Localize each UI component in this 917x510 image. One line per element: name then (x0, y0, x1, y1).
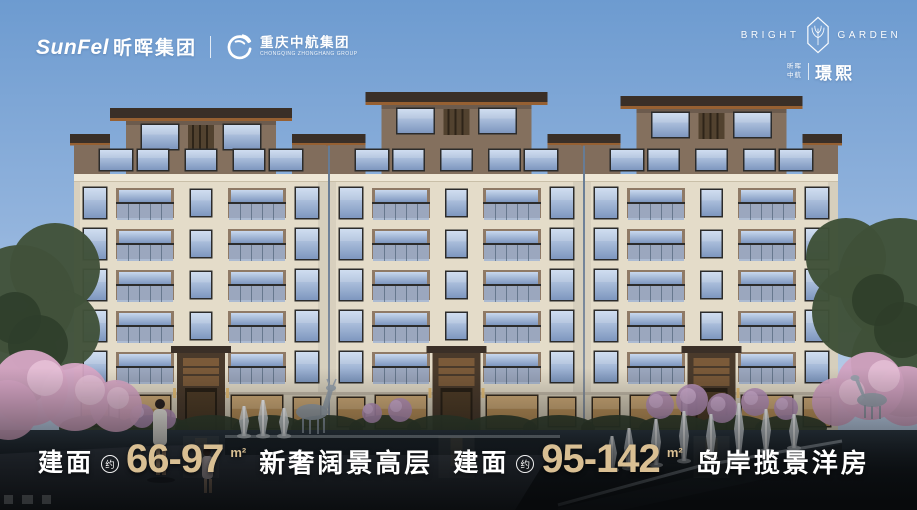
watermark-marks (4, 495, 51, 504)
area-range: 95-142 (541, 443, 660, 476)
area-label: 建面 (38, 451, 94, 476)
brand-cn-name: 璟熙 (815, 59, 855, 84)
sunfel-logo: SunFel 昕晖集团 (36, 33, 197, 60)
tagline-mansion: 建面 约 95-142 m² 岛岸揽景洋房 (453, 443, 869, 476)
partner-logo: 重庆中航集团 CHONGQING ZHONGHANG GROUP (224, 32, 358, 61)
brand-en-right: GARDEN (837, 30, 901, 41)
brand-en-row: BRIGHT GARDEN (737, 16, 905, 54)
property-ad-poster: SunFel 昕晖集团 重庆中航集团 CHONGQING ZHONGHANG G… (0, 0, 917, 510)
sunfel-cn-label: 昕晖集团 (113, 33, 197, 60)
brand-cn-small-top: 昕晖 (787, 63, 802, 71)
brand-divider (808, 63, 809, 80)
sunfel-wordmark: SunFel (36, 36, 109, 60)
brand-cn-small: 昕晖 中航 (787, 63, 802, 79)
project-brand: BRIGHT GARDEN 昕晖 中航 璟熙 (737, 16, 905, 84)
tagline-highrise: 建面 约 66-97 m² 新奢阔景高层 (38, 443, 433, 476)
brand-cn-row: 昕晖 中航 璟熙 (737, 59, 905, 84)
zhonghang-swirl-icon (224, 32, 253, 61)
tagline: 建面 约 66-97 m² 新奢阔景高层 建面 约 95-142 m² 岛岸揽景… (38, 443, 870, 476)
approx-badge: 约 (516, 455, 534, 473)
area-label: 建面 (453, 451, 509, 476)
partner-en-label: CHONGQING ZHONGHANG GROUP (260, 52, 358, 57)
header-cobrand: SunFel 昕晖集团 重庆中航集团 CHONGQING ZHONGHANG G… (36, 32, 358, 61)
approx-badge: 约 (101, 455, 119, 473)
partner-cn-label: 重庆中航集团 (260, 36, 358, 50)
area-unit: m² (667, 446, 683, 459)
area-unit: m² (230, 446, 246, 459)
slogan-mansion: 岛岸揽景洋房 (696, 450, 870, 476)
brand-en-left: BRIGHT (741, 30, 800, 41)
logo-divider (210, 36, 211, 58)
brand-cn-small-bottom: 中航 (787, 72, 802, 80)
area-range: 66-97 (126, 443, 223, 476)
garden-emblem-icon (806, 16, 830, 54)
slogan-highrise: 新奢阔景高层 (259, 450, 433, 476)
